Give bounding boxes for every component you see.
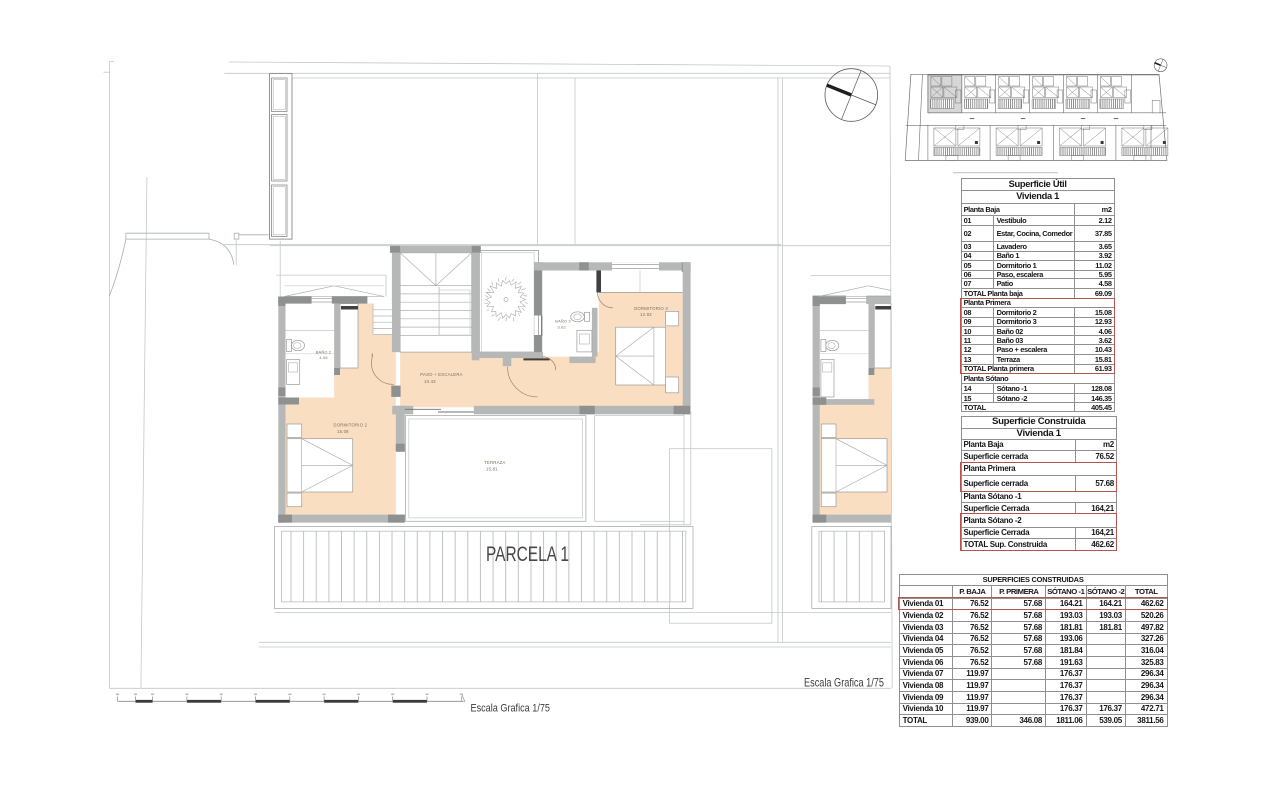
svg-text:Escala Grafica 1/75: Escala Grafica 1/75	[804, 676, 884, 690]
svg-text:12.93: 12.93	[640, 312, 652, 317]
svg-text:3.62: 3.62	[558, 325, 566, 330]
svg-text:15.08: 15.08	[337, 429, 349, 434]
svg-text:Escala Grafica 1/75: Escala Grafica 1/75	[471, 703, 551, 715]
svg-text:15.81: 15.81	[486, 467, 498, 472]
svg-text:4.06: 4.06	[319, 355, 327, 360]
svg-text:DORMITORIO 2: DORMITORIO 2	[333, 423, 367, 428]
svg-text:PASO + ESCALERA: PASO + ESCALERA	[420, 372, 462, 377]
svg-text:PARCELA 1: PARCELA 1	[486, 542, 569, 566]
svg-text:BAÑO 3: BAÑO 3	[555, 319, 570, 324]
svg-text:BAÑO 2: BAÑO 2	[316, 350, 331, 355]
svg-text:10.43: 10.43	[424, 379, 436, 384]
svg-text:TERRAZA: TERRAZA	[484, 460, 505, 465]
svg-text:DORMITORIO 3: DORMITORIO 3	[634, 306, 668, 311]
